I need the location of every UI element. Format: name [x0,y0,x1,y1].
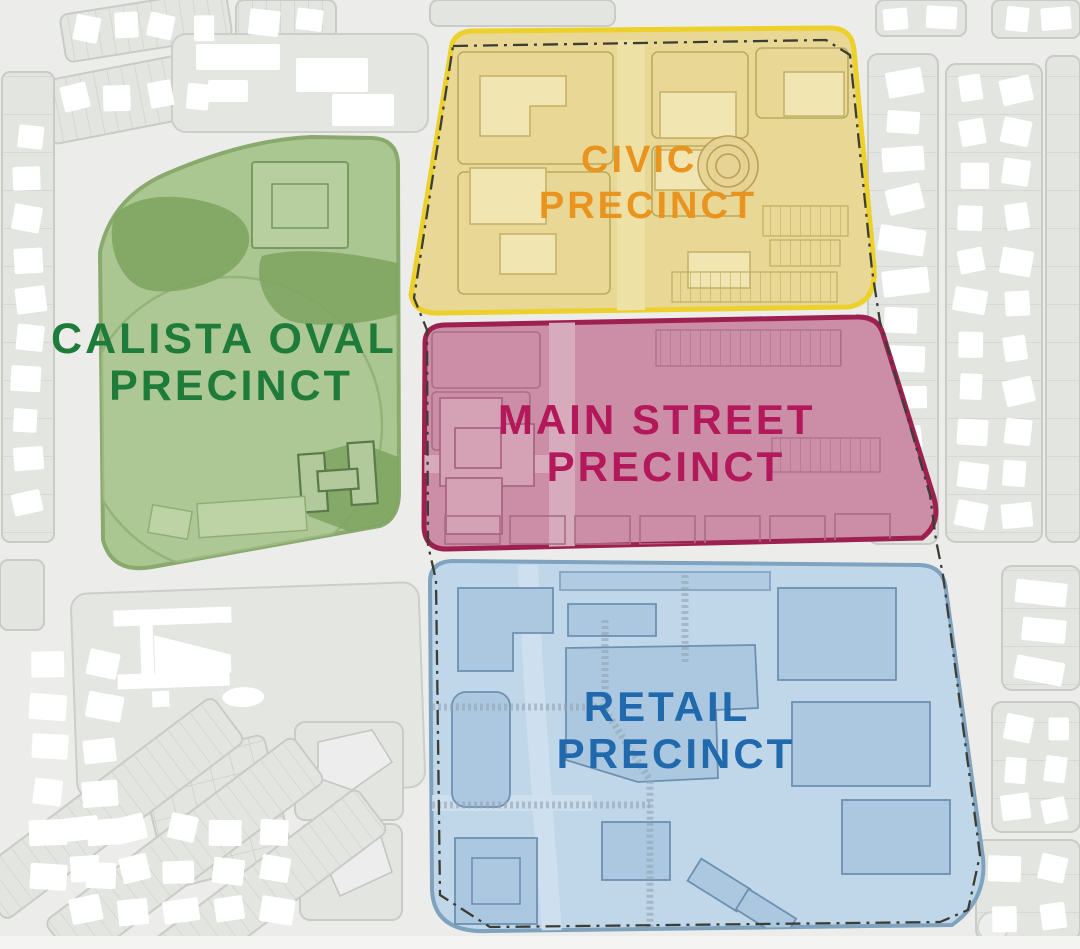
zone-civic: CIVIC PRECINCT [411,28,874,315]
precinct-plan-map: CALISTA OVAL PRECINCT [0,0,1080,949]
zone-retail-label: RETAIL PRECINCT [557,683,796,777]
zone-main-street: MAIN STREET PRECINCT [423,317,936,550]
zone-retail: RETAIL PRECINCT [430,561,983,939]
map-canvas: CALISTA OVAL PRECINCT [0,0,1080,949]
page-edge-strip [0,936,1080,949]
zone-main-street-label: MAIN STREET PRECINCT [498,396,830,490]
